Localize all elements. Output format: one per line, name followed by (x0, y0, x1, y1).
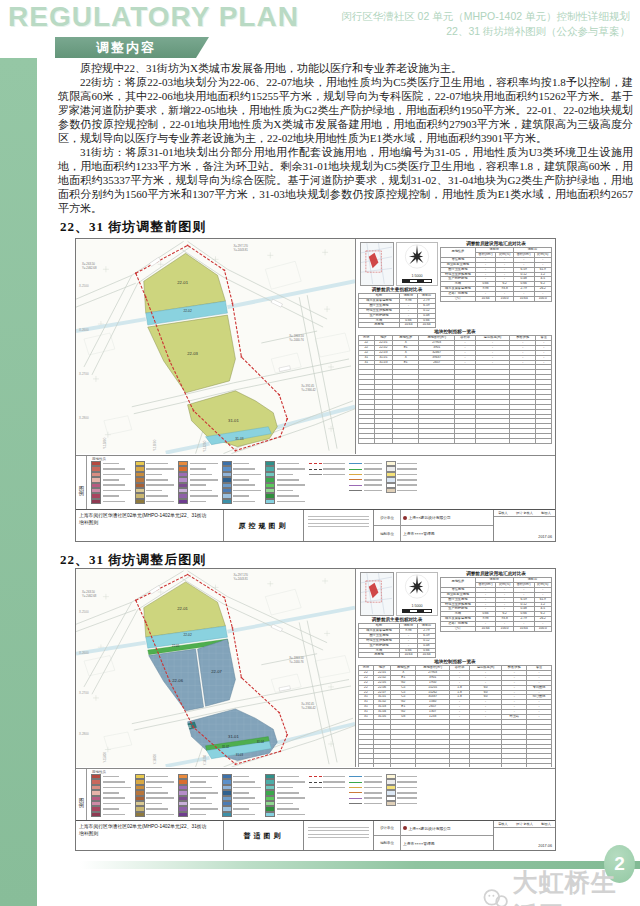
checker-label: 设计·复核人 (516, 510, 533, 516)
legend-swatch (91, 499, 101, 504)
micro-table: 街坊地块用地性质用地面积(m²)容积率建筑限高(m)配套设施备注2222-01X… (358, 665, 552, 767)
legend-swatch (265, 812, 275, 817)
svg-text:X=-263.50: X=-263.50 (82, 590, 95, 594)
legend-line-sample (349, 787, 362, 788)
adjustment-text: 原控规中22、31街坊为X类城市发展备用地，功能以医疗和专业养老设施为主。 22… (58, 61, 633, 215)
unit-block: 设计单位 上海××建筑设计有限公司 编制单位 上海市××××管理局 (374, 821, 494, 850)
legend-line-sample (349, 792, 362, 793)
label-22-01: 22-01 (177, 280, 188, 285)
legend-swatch (178, 499, 188, 504)
label-22-03: 22-03 (187, 351, 198, 356)
doc-title: 闵行区华漕社区 02 单元（MHPO-1402 单元）控制性详细规划 22、31… (341, 9, 630, 39)
svg-text:X-2700: X-2700 (79, 372, 89, 376)
svg-text:Y-16200: Y-16200 (202, 755, 206, 766)
legend-boundary-line (309, 776, 322, 777)
svg-text:X=-297.170: X=-297.170 (233, 573, 248, 577)
drafter-label: 制图人 (541, 821, 551, 827)
scale-text: 1:5000 (397, 274, 437, 278)
legend-swatch (222, 812, 232, 817)
drafter-label: 制图人 (541, 510, 551, 516)
wind-rose: 1:5000 (396, 242, 438, 286)
svg-text:X-2600: X-2600 (79, 328, 89, 332)
svg-text:Y=-2462.68: Y=-2462.68 (82, 594, 97, 598)
checker-label: 设计·复核人 (516, 821, 533, 827)
indicator-table-before: 调整前后主要指标对比表指标调整前调整后城市发展备建用地9.982.79医疗卫生用… (358, 287, 436, 328)
project-title: 上海市闵行区华漕社区02单元(MHPO-1402单元)22、31街坊 增补图则 (76, 510, 224, 541)
before-map-svg: 22-01 22-02 22-03 31-01 31-03 X-2500 X-2… (76, 239, 355, 454)
summary-table-before: 调整前后建设用地汇总对比表用地性质调整前调整后面积(hm²)比例(%)面积(hm… (440, 241, 552, 302)
map-canvas-before: 22-01 22-02 22-03 31-01 31-03 X-2500 X-2… (76, 239, 356, 454)
legend-after: 用地性质 图例 (76, 768, 555, 820)
legend-header: 用地性质 (92, 457, 106, 461)
legend-line-sample (349, 798, 362, 799)
svg-text:X-2700: X-2700 (79, 691, 89, 695)
svg-text:Y-15800: Y-15800 (103, 752, 107, 763)
legend-swatch (178, 812, 188, 817)
label-31-01: 31-01 (228, 418, 239, 423)
legend-tab: 图例 (76, 456, 87, 509)
sheet-titlebar-after: 上海市闵行区华漕社区02单元(MHPO-1402单元)22、31街坊 增补图则 … (76, 820, 555, 850)
scale-bar (402, 279, 432, 283)
after-info-panel: 1:5000 调整前后建设用地汇总对比表用地性质调整前调整后面积(hm²)比例(… (356, 569, 555, 767)
after-map-heading: 22、31 街坊调整后图则 (60, 551, 206, 569)
control-table-after: 地块控制指标一览表街坊地块用地性质用地面积(m²)容积率建筑限高(m)配套设施备… (358, 659, 552, 767)
summary-table-after: 调整前后建设用地汇总对比表用地性质调整前调整后面积(hm²)比例(%)面积(hm… (440, 571, 552, 632)
svg-text:X-2600: X-2600 (79, 651, 89, 655)
svg-text:X-2500: X-2500 (79, 284, 89, 288)
svg-text:Y-16000: Y-16000 (153, 754, 157, 765)
legend-boundary-line (309, 469, 322, 470)
sheet-titlebar-before: 上海市闵行区华漕社区02单元(MHPO-1402单元)22、31街坊 增补图则 … (76, 509, 555, 541)
legend-boundary-line (309, 782, 322, 783)
legend-line-sample (349, 490, 362, 491)
project-title: 上海市闵行区华漕社区02单元(MHPO-1402单元)22、31街坊 增补图则 (76, 821, 224, 850)
before-info-panel: 1:5000 调整前后建设用地汇总对比表用地性质调整前调整后面积(hm²)比例(… (356, 239, 555, 454)
micro-table: 指标调整前调整后城市发展备建用地9.982.79医疗卫生用地-6.59环境卫生设… (358, 293, 436, 328)
indicator-table-after: 调整前后主要指标对比表指标调整前调整后城市发展备建用地9.982.79医疗卫生用… (358, 617, 436, 658)
design-company-logo (403, 826, 407, 830)
design-unit-value: 上海××建筑设计有限公司 (409, 515, 451, 520)
watermark: 大虹桥生活网 (482, 866, 640, 906)
svg-text:X-2800: X-2800 (79, 416, 89, 420)
compile-unit-value: 上海市××××管理局 (403, 841, 435, 846)
label-22-06: 22-06 (172, 678, 183, 683)
label-31-05: 31-05 (184, 725, 192, 729)
locator-map (360, 242, 394, 286)
wind-rose-star (409, 245, 423, 264)
micro-table: 用地性质调整前调整后面积(hm²)比例(%)面积(hm²)比例(%)居住用地--… (440, 247, 552, 302)
scale-bar (402, 609, 432, 613)
label-22-02: 22-02 (184, 309, 192, 313)
label-22-02: 22-02 (184, 633, 192, 637)
legend-boundary-line (309, 474, 322, 475)
paragraph-3: 31街坊：将原31-01地块划出分部分用地用作配套设施用地，用地编号为31-05… (58, 145, 633, 215)
legend-swatch (265, 499, 275, 504)
legend-header: 用地性质 (92, 770, 106, 774)
people-block: 审核人 设计·复核人 制图人 2017.06 (494, 510, 555, 541)
svg-text:Y-16000: Y-16000 (153, 439, 157, 450)
people-block: 审核人 设计·复核人 制图人 2017.06 (494, 821, 555, 850)
legend-boundary-line (309, 463, 322, 464)
sheet-date: 2017.06 (538, 844, 552, 848)
sheet-notes (304, 510, 374, 541)
left-accent-bar (0, 58, 37, 906)
reviewer-label: 审核人 (498, 821, 508, 827)
svg-text:Y=-2440.76: Y=-2440.76 (289, 338, 304, 342)
after-map-svg: 22-01 22-02 22-05 22-06 22-07 31-01 31-0… (76, 569, 355, 767)
label-22-07: 22-07 (211, 669, 222, 674)
sheet-type-label: 普适图则 (224, 821, 304, 850)
before-map-heading: 22、31 街坊调整前图则 (60, 218, 206, 236)
map-sheet-after: 22-01 22-02 22-05 22-06 22-07 31-01 31-0… (75, 568, 556, 851)
watermark-text: 大虹桥生活网 (513, 866, 640, 906)
legend-swatch (135, 499, 145, 504)
legend-line-sample (349, 776, 362, 777)
svg-text:Y=-2440.76: Y=-2440.76 (289, 660, 304, 664)
design-company-logo (403, 516, 407, 520)
legend-line-sample (349, 485, 362, 486)
legend-misc-box (386, 801, 396, 806)
paragraph-1: 原控规中22、31街坊为X类城市发展备用地，功能以医疗和专业养老设施为主。 (58, 61, 633, 75)
design-unit-value: 上海××建筑设计有限公司 (409, 826, 451, 831)
legend-line-sample (349, 803, 362, 804)
svg-text:Y=-2443.81: Y=-2443.81 (233, 577, 248, 581)
legend-swatch (222, 499, 232, 504)
legend-line-sample (349, 782, 362, 783)
design-unit-label: 设计单位 (374, 510, 401, 525)
watermark-logo (482, 884, 510, 906)
label-31-02: 31-02 (222, 745, 230, 749)
legend-tab: 图例 (76, 769, 87, 820)
micro-table: 街坊地块用地性质用地面积(m²)容积率建筑限高(m)配套设施备注2222-01X… (358, 335, 552, 444)
label-22-01: 22-01 (177, 607, 188, 612)
legend-swatch (91, 812, 101, 817)
svg-text:X-2800: X-2800 (79, 732, 89, 736)
paragraph-2: 22街坊：将原22-03地块划分为22-06、22-07地块，用地性质均为C5类… (58, 75, 633, 145)
page-title: REGULATORY PLAN (8, 1, 299, 33)
svg-text:Y=-2366.42: Y=-2366.42 (301, 706, 316, 710)
legend-line-sample (349, 463, 362, 464)
page: REGULATORY PLAN 闵行区华漕社区 02 单元（MHPO-1402 … (0, 0, 640, 906)
sheet-date: 2017.06 (538, 535, 552, 539)
svg-text:Y=-2443.81: Y=-2443.81 (233, 248, 248, 252)
control-table-before: 地块控制指标一览表街坊地块用地性质用地面积(m²)容积率建筑限高(m)配套设施备… (358, 329, 552, 444)
svg-text:X=-1863.50: X=-1863.50 (289, 656, 304, 660)
legend-swatch (135, 812, 145, 817)
svg-text:Y-15800: Y-15800 (103, 437, 107, 448)
compile-unit-label: 编制单位 (374, 836, 401, 850)
label-31-03: 31-03 (235, 437, 243, 441)
micro-table: 指标调整前调整后城市发展备建用地9.982.79医疗卫生用地-6.59环境卫生设… (358, 623, 436, 658)
section-banner: 调整内容 (55, 37, 209, 58)
sheet-notes (304, 821, 374, 850)
compile-unit-label: 编制单位 (374, 526, 401, 541)
label-31-04: 31-04 (257, 740, 265, 744)
micro-table: 用地性质调整前调整后面积(hm²)比例(%)面积(hm²)比例(%)居住用地--… (440, 577, 552, 632)
compile-unit-value: 上海市××××管理局 (403, 531, 435, 536)
doc-title-line2: 22、31 街坊增补图则（公众参与草案） (341, 24, 630, 39)
svg-text:X=-392.45: X=-392.45 (301, 702, 314, 706)
svg-text:Y=-2366.42: Y=-2366.42 (301, 388, 316, 392)
legend-line-sample (349, 469, 362, 470)
locator-map (360, 572, 394, 616)
legend-before: 用地性质 图例 (76, 455, 555, 509)
svg-text:Y-16200: Y-16200 (203, 440, 207, 451)
design-unit-label: 设计单位 (374, 821, 401, 835)
legend-line-sample (349, 479, 362, 480)
map-canvas-after: 22-01 22-02 22-05 22-06 22-07 31-01 31-0… (76, 569, 356, 767)
label-22-05: 22-05 (172, 644, 180, 648)
sheet-type-label: 原控规图则 (224, 510, 304, 541)
wind-rose: 1:5000 (396, 572, 438, 616)
legend-line-sample (349, 474, 362, 475)
legend-boundary-line (309, 787, 322, 788)
label-31-01: 31-01 (228, 734, 239, 739)
legend-misc-box (386, 488, 396, 493)
reviewer-label: 审核人 (498, 510, 508, 516)
doc-title-line1: 闵行区华漕社区 02 单元（MHPO-1402 单元）控制性详细规划 (341, 9, 630, 24)
map-sheet-before: 22-01 22-02 22-03 31-01 31-03 X-2500 X-2… (75, 238, 556, 542)
unit-block: 设计单位 上海××建筑设计有限公司 编制单位 上海市××××管理局 (374, 510, 494, 541)
wind-rose-star (409, 575, 423, 594)
scale-text: 1:5000 (397, 604, 437, 608)
label-31-03: 31-03 (236, 753, 244, 757)
svg-text:Y=-2462.68: Y=-2462.68 (82, 266, 97, 270)
svg-text:X-2500: X-2500 (79, 610, 89, 614)
